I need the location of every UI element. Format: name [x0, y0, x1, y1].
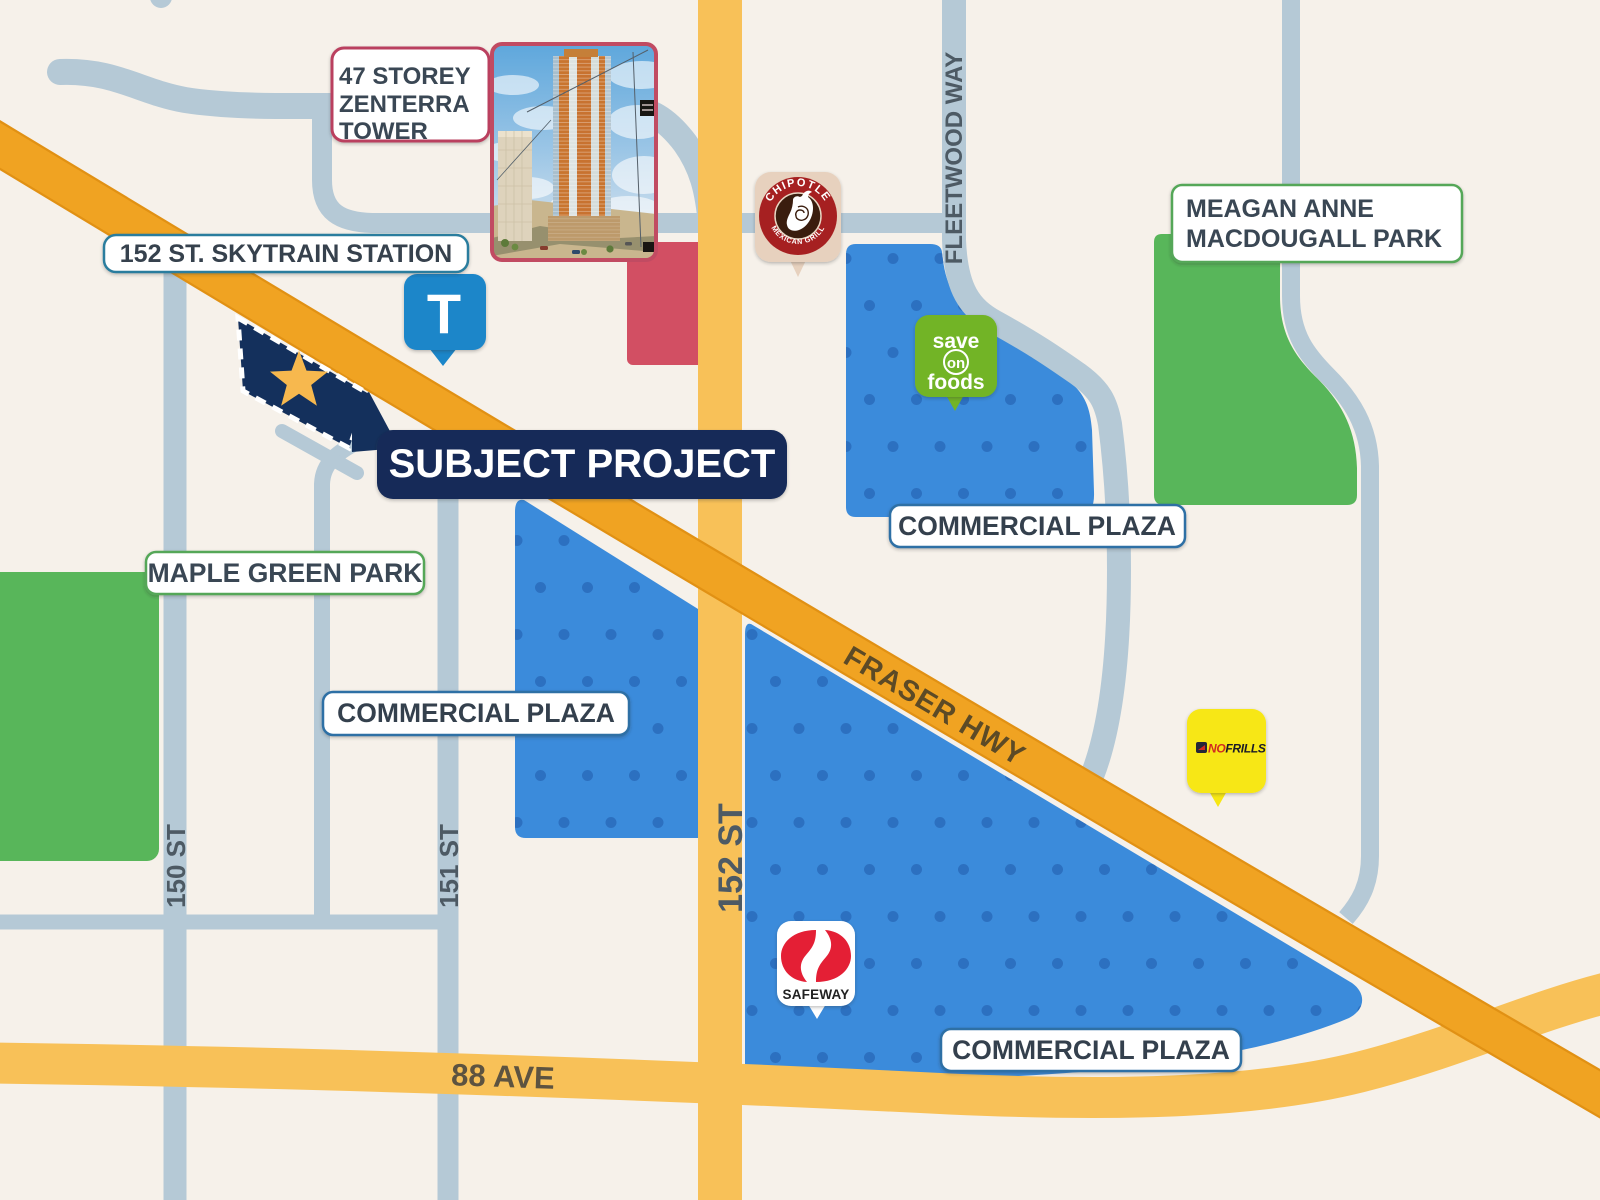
svg-text:MAPLE GREEN PARK: MAPLE GREEN PARK — [148, 558, 423, 588]
svg-text:T: T — [427, 282, 461, 345]
svg-text:151 ST: 151 ST — [434, 824, 464, 908]
svg-text:FLEETWOOD WAY: FLEETWOOD WAY — [941, 52, 968, 264]
svg-text:152 ST. SKYTRAIN STATION: 152 ST. SKYTRAIN STATION — [120, 240, 452, 268]
svg-text:152 ST: 152 ST — [712, 803, 750, 913]
svg-text:COMMERCIAL PLAZA: COMMERCIAL PLAZA — [898, 511, 1176, 541]
svg-text:SAFEWAY: SAFEWAY — [783, 987, 850, 1002]
svg-text:COMMERCIAL PLAZA: COMMERCIAL PLAZA — [337, 698, 615, 728]
svg-text:ZENTERRA: ZENTERRA — [339, 91, 470, 118]
svg-text:foods: foods — [927, 371, 984, 394]
svg-text:88 AVE: 88 AVE — [451, 1057, 556, 1096]
svg-text:SUBJECT PROJECT: SUBJECT PROJECT — [389, 442, 776, 486]
svg-text:TOWER: TOWER — [339, 118, 428, 145]
svg-text:MACDOUGALL PARK: MACDOUGALL PARK — [1186, 225, 1442, 253]
svg-text:NOFRILLS: NOFRILLS — [1208, 742, 1266, 756]
svg-text:150 ST: 150 ST — [161, 824, 191, 908]
svg-text:MEAGAN ANNE: MEAGAN ANNE — [1186, 195, 1374, 223]
svg-text:47 STOREY: 47 STOREY — [339, 63, 471, 90]
svg-text:COMMERCIAL PLAZA: COMMERCIAL PLAZA — [952, 1035, 1230, 1065]
svg-text:on: on — [947, 355, 965, 372]
